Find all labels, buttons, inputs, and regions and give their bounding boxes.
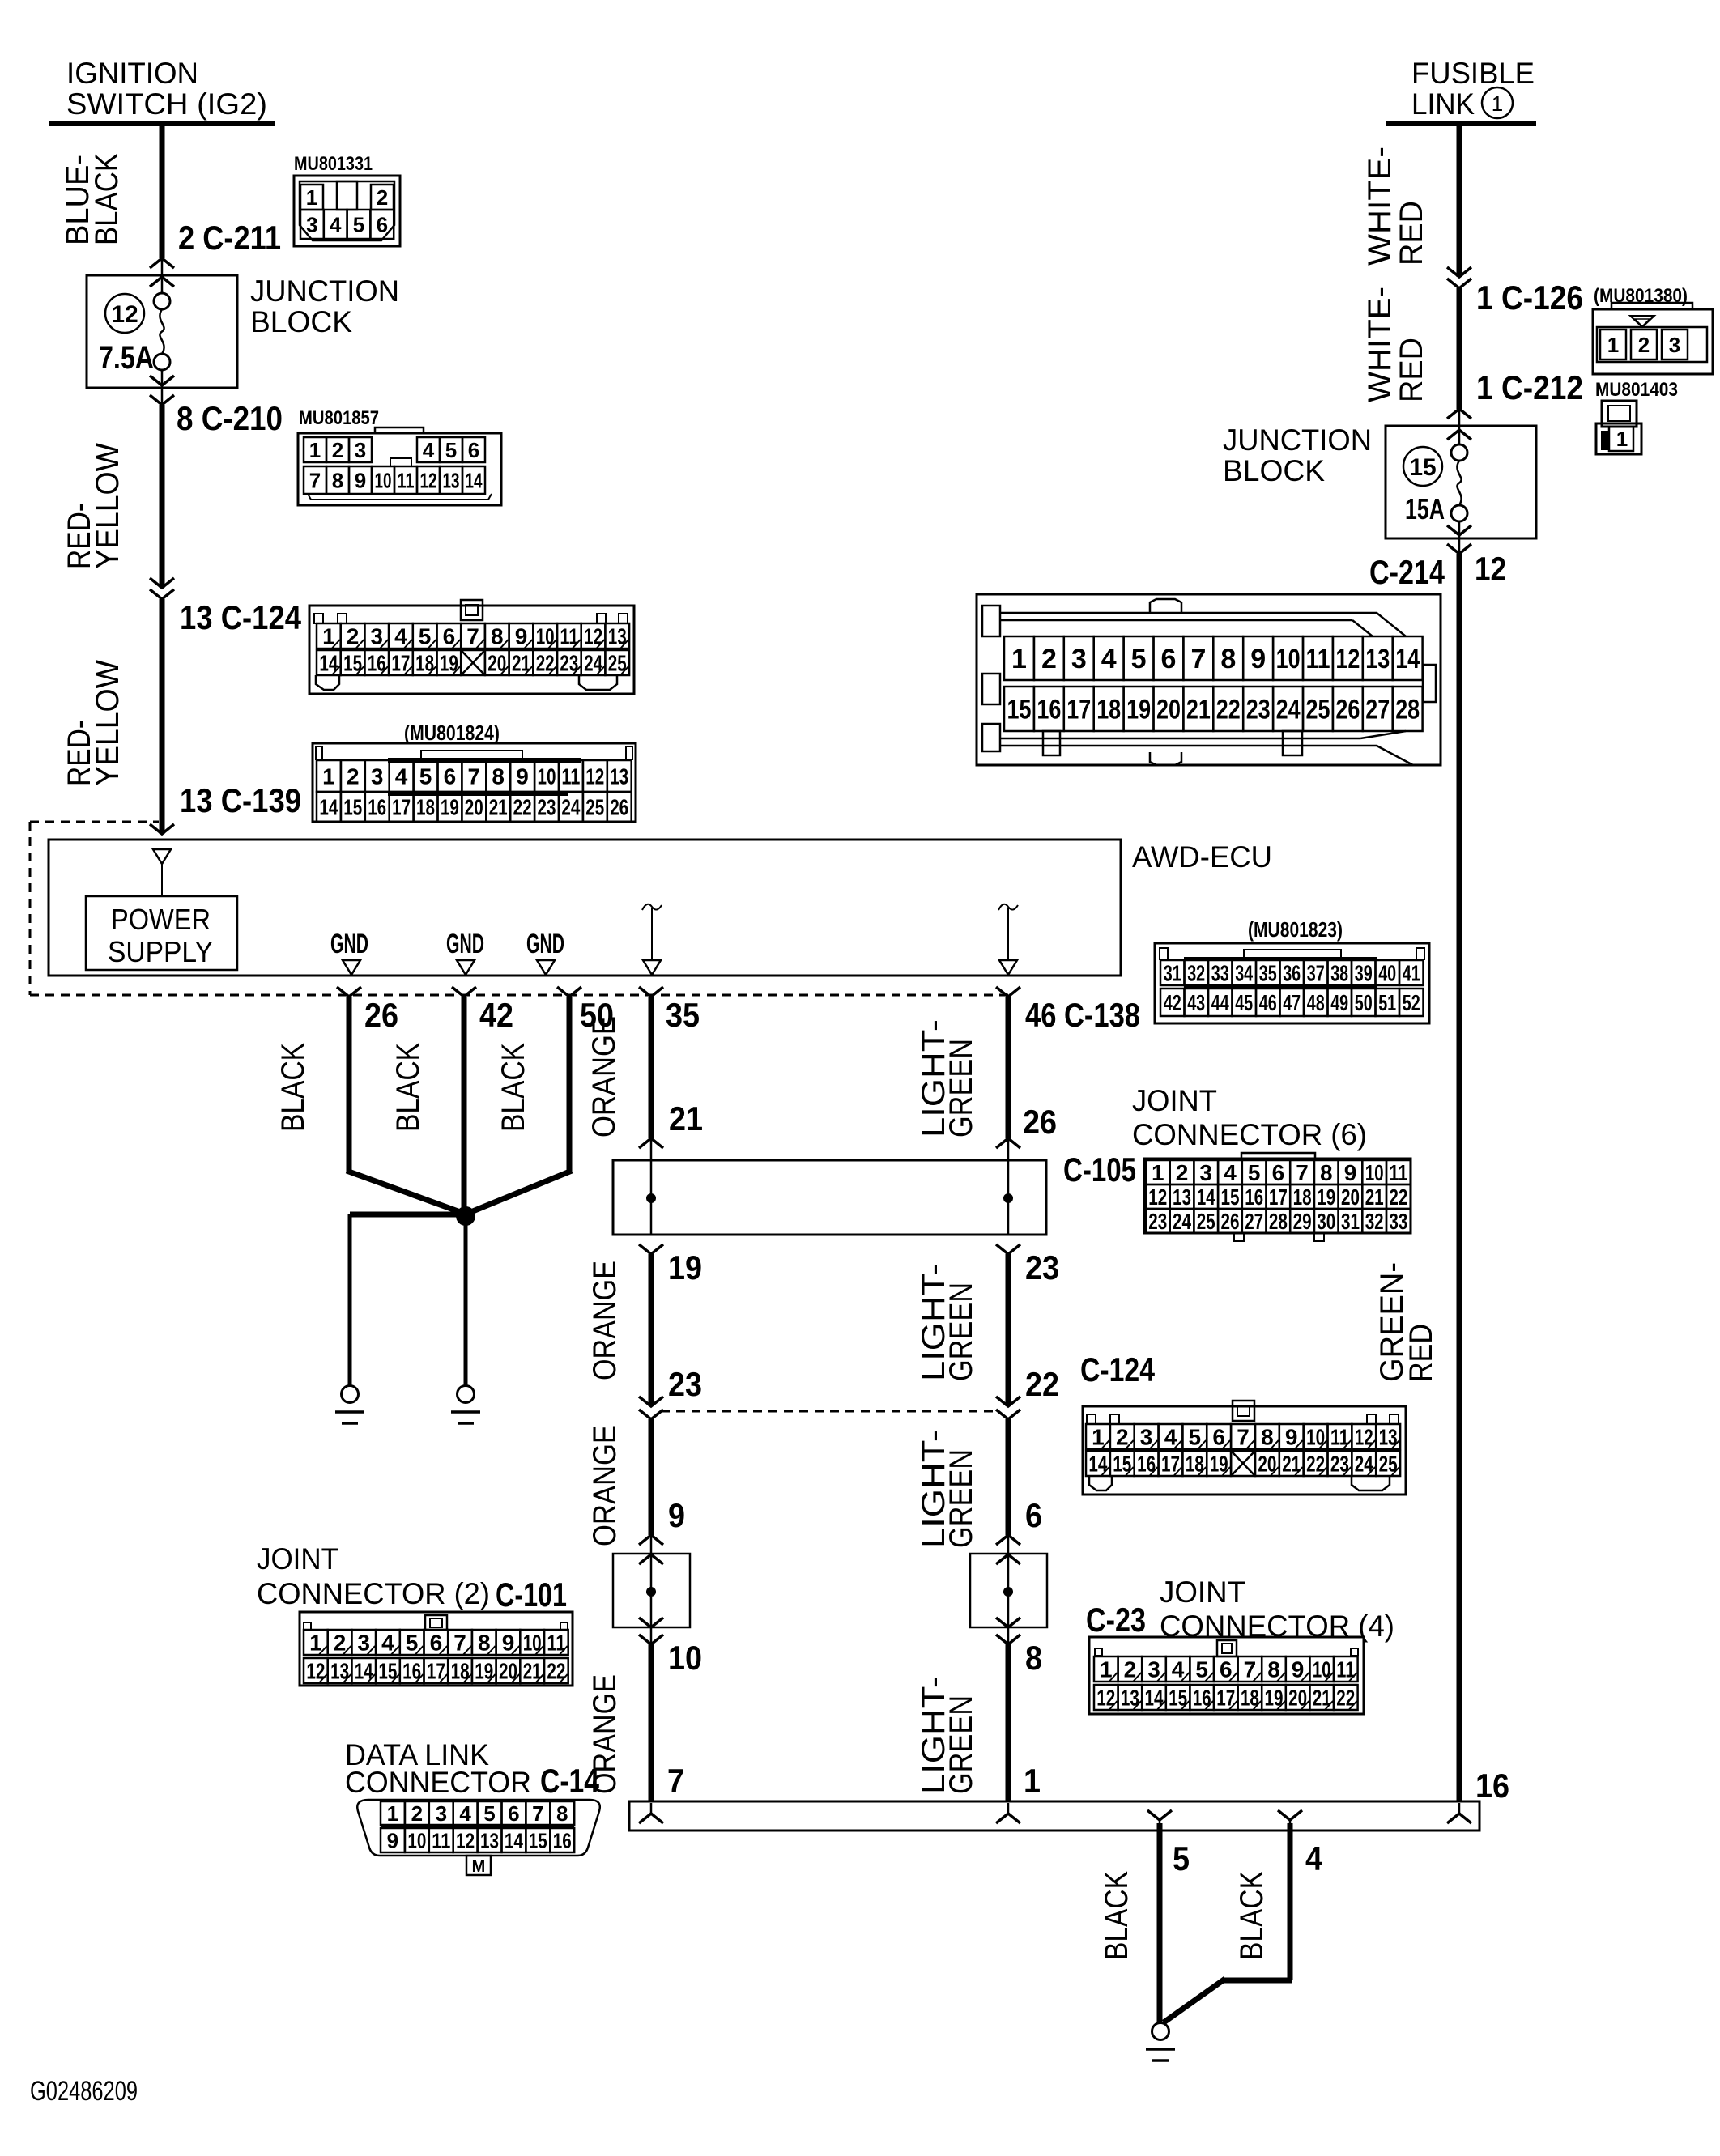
svg-text:12: 12 bbox=[111, 301, 138, 328]
svg-text:8: 8 bbox=[478, 1631, 491, 1656]
svg-text:1: 1 bbox=[387, 1801, 398, 1826]
svg-text:4: 4 bbox=[381, 1631, 394, 1656]
svg-text:13: 13 bbox=[480, 1828, 499, 1852]
svg-text:19: 19 bbox=[1317, 1184, 1335, 1210]
svg-text:2: 2 bbox=[1116, 1425, 1129, 1450]
svg-text:8: 8 bbox=[556, 1801, 568, 1826]
svg-text:7: 7 bbox=[1190, 644, 1206, 674]
svg-text:1: 1 bbox=[1100, 1657, 1113, 1682]
svg-text:7: 7 bbox=[453, 1631, 466, 1656]
svg-text:3: 3 bbox=[436, 1801, 447, 1826]
svg-text:20: 20 bbox=[1341, 1184, 1360, 1210]
svg-text:8: 8 bbox=[491, 624, 504, 649]
svg-text:8: 8 bbox=[1261, 1425, 1274, 1450]
svg-text:4: 4 bbox=[1305, 1839, 1323, 1877]
svg-text:IGNITION: IGNITION bbox=[66, 57, 198, 90]
svg-text:2: 2 bbox=[411, 1801, 423, 1826]
svg-text:MU801857: MU801857 bbox=[299, 407, 379, 429]
svg-text:29: 29 bbox=[1293, 1209, 1312, 1234]
svg-text:2: 2 bbox=[1041, 644, 1057, 674]
svg-text:2 C-211: 2 C-211 bbox=[178, 219, 281, 257]
svg-text:12: 12 bbox=[420, 468, 437, 492]
svg-text:18: 18 bbox=[416, 795, 435, 820]
svg-text:13: 13 bbox=[610, 764, 628, 789]
svg-text:23: 23 bbox=[1246, 695, 1271, 725]
svg-text:33: 33 bbox=[1389, 1209, 1407, 1234]
svg-text:6: 6 bbox=[444, 764, 457, 789]
svg-text:RED: RED bbox=[1403, 1324, 1439, 1382]
svg-text:17: 17 bbox=[392, 795, 411, 820]
svg-text:WHITE-: WHITE- bbox=[1362, 287, 1398, 402]
svg-text:3: 3 bbox=[1199, 1160, 1212, 1185]
svg-text:11: 11 bbox=[1306, 644, 1330, 674]
svg-text:9: 9 bbox=[668, 1496, 685, 1534]
svg-text:52: 52 bbox=[1403, 990, 1420, 1015]
svg-text:12: 12 bbox=[1475, 550, 1506, 588]
svg-text:JUNCTION: JUNCTION bbox=[1223, 423, 1372, 457]
svg-text:1: 1 bbox=[322, 624, 335, 649]
svg-text:4: 4 bbox=[1224, 1160, 1237, 1185]
svg-text:8: 8 bbox=[332, 468, 343, 492]
svg-text:17: 17 bbox=[1269, 1184, 1288, 1210]
svg-text:10: 10 bbox=[375, 468, 392, 492]
svg-text:9: 9 bbox=[1285, 1425, 1298, 1450]
svg-text:10: 10 bbox=[407, 1828, 426, 1852]
svg-text:10: 10 bbox=[1365, 1160, 1384, 1185]
svg-text:GND: GND bbox=[446, 929, 484, 959]
svg-text:4: 4 bbox=[459, 1801, 471, 1826]
svg-text:YELLOW: YELLOW bbox=[90, 443, 126, 569]
svg-text:9: 9 bbox=[355, 468, 366, 492]
svg-text:22: 22 bbox=[1389, 1184, 1407, 1210]
svg-text:25: 25 bbox=[1306, 695, 1330, 725]
svg-text:JOINT: JOINT bbox=[1160, 1576, 1245, 1609]
svg-text:23: 23 bbox=[1148, 1209, 1167, 1234]
svg-text:6: 6 bbox=[1272, 1160, 1285, 1185]
svg-text:49: 49 bbox=[1330, 990, 1348, 1015]
svg-text:2: 2 bbox=[1124, 1657, 1137, 1682]
svg-text:M: M bbox=[472, 1858, 486, 1876]
svg-text:2: 2 bbox=[1638, 333, 1650, 357]
svg-text:7: 7 bbox=[667, 1762, 684, 1800]
svg-text:20: 20 bbox=[465, 795, 483, 820]
svg-text:GREEN: GREEN bbox=[943, 1039, 979, 1138]
svg-text:36: 36 bbox=[1283, 961, 1301, 986]
svg-text:C-105: C-105 bbox=[1063, 1150, 1136, 1189]
svg-text:25: 25 bbox=[585, 795, 604, 820]
svg-text:5: 5 bbox=[419, 764, 432, 789]
svg-text:15: 15 bbox=[1007, 695, 1032, 725]
svg-text:LINK: LINK bbox=[1411, 87, 1475, 121]
svg-text:5: 5 bbox=[353, 212, 364, 236]
svg-text:GREEN: GREEN bbox=[943, 1282, 979, 1381]
svg-text:10: 10 bbox=[668, 1639, 702, 1677]
svg-text:37: 37 bbox=[1307, 961, 1325, 986]
svg-text:24: 24 bbox=[1173, 1209, 1191, 1234]
svg-text:24: 24 bbox=[1276, 695, 1301, 725]
svg-text:14: 14 bbox=[505, 1828, 523, 1852]
svg-text:JUNCTION: JUNCTION bbox=[250, 274, 399, 308]
svg-text:POWER: POWER bbox=[111, 903, 211, 936]
svg-text:8: 8 bbox=[1267, 1657, 1280, 1682]
svg-text:ORANGE: ORANGE bbox=[587, 1261, 623, 1380]
svg-text:16: 16 bbox=[1245, 1184, 1263, 1210]
svg-text:ORANGE: ORANGE bbox=[587, 1425, 623, 1546]
svg-text:31: 31 bbox=[1164, 961, 1181, 986]
svg-text:9: 9 bbox=[1344, 1160, 1357, 1185]
svg-text:1 C-212: 1 C-212 bbox=[1476, 368, 1583, 406]
svg-text:23: 23 bbox=[668, 1365, 702, 1403]
svg-text:8 C-210: 8 C-210 bbox=[177, 399, 283, 437]
svg-text:8: 8 bbox=[1220, 644, 1236, 674]
svg-text:39: 39 bbox=[1355, 961, 1373, 986]
svg-text:22: 22 bbox=[513, 795, 532, 820]
svg-text:3: 3 bbox=[357, 1631, 370, 1656]
svg-text:20: 20 bbox=[1156, 695, 1181, 725]
svg-text:48: 48 bbox=[1307, 990, 1325, 1015]
svg-text:RED: RED bbox=[1394, 338, 1429, 402]
svg-text:32: 32 bbox=[1365, 1209, 1384, 1234]
svg-text:4: 4 bbox=[1164, 1425, 1177, 1450]
svg-text:18: 18 bbox=[1293, 1184, 1312, 1210]
svg-text:3: 3 bbox=[371, 764, 384, 789]
svg-text:31: 31 bbox=[1341, 1209, 1360, 1234]
svg-text:BLACK: BLACK bbox=[1099, 1871, 1135, 1960]
svg-text:1: 1 bbox=[309, 438, 321, 462]
svg-text:GREEN: GREEN bbox=[943, 1449, 979, 1548]
svg-text:45: 45 bbox=[1235, 990, 1253, 1015]
svg-text:7: 7 bbox=[466, 624, 479, 649]
svg-text:27: 27 bbox=[1365, 695, 1390, 725]
svg-text:BLACK: BLACK bbox=[89, 153, 125, 245]
svg-text:JOINT: JOINT bbox=[257, 1542, 338, 1576]
svg-text:13: 13 bbox=[443, 468, 460, 492]
svg-text:12: 12 bbox=[585, 764, 604, 789]
svg-text:42: 42 bbox=[479, 996, 513, 1034]
svg-text:4: 4 bbox=[330, 212, 342, 236]
svg-text:50: 50 bbox=[1355, 990, 1373, 1015]
svg-text:22: 22 bbox=[1025, 1365, 1059, 1403]
svg-text:9: 9 bbox=[387, 1828, 398, 1852]
svg-text:5: 5 bbox=[445, 438, 457, 462]
svg-text:FUSIBLE: FUSIBLE bbox=[1411, 57, 1535, 90]
svg-text:1: 1 bbox=[306, 185, 317, 210]
svg-text:1 C-126: 1 C-126 bbox=[1476, 279, 1583, 317]
svg-text:13 C-139: 13 C-139 bbox=[180, 781, 301, 819]
svg-text:32: 32 bbox=[1187, 961, 1205, 986]
svg-text:11: 11 bbox=[432, 1828, 450, 1852]
svg-text:RED: RED bbox=[1394, 201, 1429, 266]
svg-text:26: 26 bbox=[1335, 695, 1360, 725]
svg-text:26: 26 bbox=[1023, 1103, 1057, 1141]
svg-text:11: 11 bbox=[561, 764, 580, 789]
svg-text:13 C-124: 13 C-124 bbox=[180, 598, 302, 636]
svg-text:3: 3 bbox=[1140, 1425, 1153, 1450]
svg-text:4: 4 bbox=[1172, 1657, 1185, 1682]
svg-text:5: 5 bbox=[419, 624, 432, 649]
svg-text:27: 27 bbox=[1245, 1209, 1263, 1234]
svg-text:9: 9 bbox=[502, 1631, 515, 1656]
svg-text:33: 33 bbox=[1211, 961, 1229, 986]
svg-text:4: 4 bbox=[1101, 644, 1117, 674]
svg-text:9: 9 bbox=[515, 624, 528, 649]
svg-text:34: 34 bbox=[1235, 961, 1253, 986]
svg-text:9: 9 bbox=[1292, 1657, 1305, 1682]
svg-text:7: 7 bbox=[532, 1801, 543, 1826]
svg-text:5: 5 bbox=[483, 1801, 495, 1826]
svg-text:15A: 15A bbox=[1405, 492, 1445, 525]
svg-text:SUPPLY: SUPPLY bbox=[108, 935, 213, 968]
svg-text:WHITE-: WHITE- bbox=[1362, 147, 1398, 266]
svg-text:15: 15 bbox=[1409, 454, 1436, 481]
svg-text:1: 1 bbox=[1152, 1160, 1164, 1185]
svg-text:25: 25 bbox=[1197, 1209, 1215, 1234]
svg-text:51: 51 bbox=[1378, 990, 1396, 1015]
svg-text:15: 15 bbox=[343, 795, 362, 820]
svg-text:MU801331: MU801331 bbox=[294, 153, 373, 175]
svg-text:1: 1 bbox=[309, 1631, 322, 1656]
svg-text:16: 16 bbox=[368, 795, 386, 820]
svg-text:3: 3 bbox=[355, 438, 366, 462]
svg-text:3: 3 bbox=[370, 624, 383, 649]
svg-text:5: 5 bbox=[1248, 1160, 1261, 1185]
svg-text:23: 23 bbox=[538, 795, 556, 820]
svg-text:6: 6 bbox=[508, 1801, 519, 1826]
svg-text:10: 10 bbox=[1276, 644, 1301, 674]
svg-text:C-14: C-14 bbox=[540, 1762, 600, 1800]
svg-text:4: 4 bbox=[423, 438, 435, 462]
svg-text:9: 9 bbox=[1250, 644, 1266, 674]
svg-text:47: 47 bbox=[1283, 990, 1301, 1015]
svg-text:ORANGE: ORANGE bbox=[586, 1016, 622, 1138]
svg-text:43: 43 bbox=[1187, 990, 1205, 1015]
svg-text:11: 11 bbox=[398, 468, 415, 492]
svg-text:5: 5 bbox=[1131, 644, 1147, 674]
svg-text:30: 30 bbox=[1317, 1209, 1335, 1234]
svg-text:2: 2 bbox=[1176, 1160, 1189, 1185]
svg-text:26: 26 bbox=[610, 795, 628, 820]
svg-text:2: 2 bbox=[347, 624, 360, 649]
svg-text:6: 6 bbox=[1212, 1425, 1225, 1450]
svg-text:1: 1 bbox=[1024, 1762, 1041, 1800]
svg-text:(MU801823): (MU801823) bbox=[1248, 917, 1343, 942]
svg-text:C-23: C-23 bbox=[1086, 1601, 1146, 1639]
svg-text:1: 1 bbox=[1092, 1425, 1105, 1450]
svg-text:GND: GND bbox=[330, 929, 368, 959]
svg-text:C-101: C-101 bbox=[496, 1576, 567, 1614]
svg-text:CONNECTOR (2): CONNECTOR (2) bbox=[257, 1577, 490, 1610]
svg-text:7: 7 bbox=[309, 468, 321, 492]
svg-text:15: 15 bbox=[529, 1828, 547, 1852]
svg-text:4: 4 bbox=[394, 624, 407, 649]
svg-text:3: 3 bbox=[1147, 1657, 1160, 1682]
svg-text:17: 17 bbox=[1066, 695, 1091, 725]
svg-text:16: 16 bbox=[1037, 695, 1061, 725]
svg-text:38: 38 bbox=[1330, 961, 1348, 986]
svg-text:7: 7 bbox=[468, 764, 481, 789]
svg-text:2: 2 bbox=[377, 185, 388, 210]
svg-text:6: 6 bbox=[1220, 1657, 1233, 1682]
svg-text:BLACK: BLACK bbox=[1234, 1871, 1270, 1960]
svg-text:4: 4 bbox=[395, 764, 408, 789]
svg-text:14: 14 bbox=[1395, 644, 1420, 674]
svg-text:G02486209: G02486209 bbox=[30, 2076, 138, 2107]
svg-text:1: 1 bbox=[1011, 644, 1027, 674]
svg-text:16: 16 bbox=[553, 1828, 572, 1852]
svg-text:MU801403: MU801403 bbox=[1595, 379, 1678, 401]
svg-text:2: 2 bbox=[334, 1631, 347, 1656]
svg-text:BLOCK: BLOCK bbox=[250, 305, 352, 338]
svg-text:1: 1 bbox=[1616, 427, 1628, 451]
svg-text:10: 10 bbox=[538, 764, 556, 789]
svg-text:26: 26 bbox=[1221, 1209, 1240, 1234]
svg-text:BLOCK: BLOCK bbox=[1223, 454, 1325, 487]
svg-text:21: 21 bbox=[1186, 695, 1211, 725]
svg-text:6: 6 bbox=[430, 1631, 443, 1656]
svg-text:12: 12 bbox=[1335, 644, 1360, 674]
svg-text:12: 12 bbox=[456, 1828, 475, 1852]
svg-text:6: 6 bbox=[468, 438, 479, 462]
svg-text:SWITCH (IG2): SWITCH (IG2) bbox=[66, 87, 267, 121]
svg-text:GREEN: GREEN bbox=[943, 1695, 979, 1794]
svg-text:3: 3 bbox=[1669, 333, 1680, 357]
svg-text:5: 5 bbox=[406, 1631, 419, 1656]
svg-text:1: 1 bbox=[1607, 333, 1619, 357]
svg-text:19: 19 bbox=[1126, 695, 1151, 725]
svg-text:6: 6 bbox=[1025, 1496, 1042, 1534]
svg-text:16: 16 bbox=[1475, 1767, 1509, 1805]
svg-text:6: 6 bbox=[377, 212, 388, 236]
svg-text:13: 13 bbox=[1173, 1184, 1191, 1210]
svg-text:19: 19 bbox=[668, 1248, 702, 1286]
svg-text:12: 12 bbox=[1148, 1184, 1167, 1210]
svg-text:AWD-ECU: AWD-ECU bbox=[1132, 840, 1272, 874]
svg-text:YELLOW: YELLOW bbox=[90, 660, 126, 786]
svg-text:CONNECTOR: CONNECTOR bbox=[345, 1766, 531, 1799]
svg-text:21: 21 bbox=[669, 1099, 703, 1138]
svg-text:3: 3 bbox=[306, 212, 317, 236]
svg-text:GND: GND bbox=[526, 929, 564, 959]
svg-text:11: 11 bbox=[1389, 1160, 1407, 1185]
svg-text:42: 42 bbox=[1164, 990, 1181, 1015]
svg-text:15: 15 bbox=[1221, 1184, 1240, 1210]
svg-text:5: 5 bbox=[1173, 1839, 1190, 1877]
svg-text:6: 6 bbox=[443, 624, 456, 649]
svg-text:14: 14 bbox=[1197, 1184, 1215, 1210]
svg-text:BLACK: BLACK bbox=[496, 1043, 531, 1132]
svg-text:3: 3 bbox=[1071, 644, 1087, 674]
svg-text:19: 19 bbox=[441, 795, 459, 820]
svg-text:7: 7 bbox=[1244, 1657, 1257, 1682]
svg-text:24: 24 bbox=[561, 795, 580, 820]
svg-text:8: 8 bbox=[1320, 1160, 1333, 1185]
svg-text:(MU801824): (MU801824) bbox=[404, 721, 500, 745]
svg-text:26: 26 bbox=[364, 996, 398, 1034]
svg-text:1: 1 bbox=[322, 764, 335, 789]
svg-text:1: 1 bbox=[1492, 91, 1503, 116]
svg-text:7.5A: 7.5A bbox=[99, 340, 154, 376]
svg-text:41: 41 bbox=[1403, 961, 1420, 986]
svg-text:7: 7 bbox=[1237, 1425, 1250, 1450]
svg-text:28: 28 bbox=[1269, 1209, 1288, 1234]
svg-text:5: 5 bbox=[1189, 1425, 1202, 1450]
svg-text:JOINT: JOINT bbox=[1132, 1084, 1217, 1117]
svg-text:C-214: C-214 bbox=[1369, 553, 1445, 591]
svg-text:BLACK: BLACK bbox=[275, 1043, 311, 1132]
svg-text:18: 18 bbox=[1096, 695, 1121, 725]
svg-text:14: 14 bbox=[466, 468, 483, 492]
svg-text:2: 2 bbox=[347, 764, 360, 789]
svg-text:2: 2 bbox=[332, 438, 343, 462]
svg-text:9: 9 bbox=[516, 764, 529, 789]
svg-text:35: 35 bbox=[1259, 961, 1277, 986]
svg-text:6: 6 bbox=[1161, 644, 1177, 674]
svg-text:21: 21 bbox=[1365, 1184, 1384, 1210]
svg-text:28: 28 bbox=[1395, 695, 1420, 725]
svg-text:46 C-138: 46 C-138 bbox=[1025, 996, 1140, 1034]
svg-text:40: 40 bbox=[1378, 961, 1396, 986]
svg-text:CONNECTOR (6): CONNECTOR (6) bbox=[1132, 1118, 1367, 1151]
svg-text:8: 8 bbox=[492, 764, 505, 789]
svg-text:44: 44 bbox=[1211, 990, 1229, 1015]
svg-text:13: 13 bbox=[1365, 644, 1390, 674]
svg-text:BLACK: BLACK bbox=[390, 1043, 426, 1132]
svg-text:35: 35 bbox=[666, 996, 700, 1034]
svg-text:8: 8 bbox=[1025, 1639, 1042, 1677]
svg-text:22: 22 bbox=[1216, 695, 1241, 725]
svg-text:46: 46 bbox=[1259, 990, 1277, 1015]
svg-text:5: 5 bbox=[1195, 1657, 1208, 1682]
svg-text:21: 21 bbox=[489, 795, 508, 820]
svg-text:14: 14 bbox=[319, 795, 338, 820]
svg-text:23: 23 bbox=[1025, 1248, 1059, 1286]
svg-text:7: 7 bbox=[1296, 1160, 1309, 1185]
svg-text:C-124: C-124 bbox=[1080, 1350, 1156, 1388]
